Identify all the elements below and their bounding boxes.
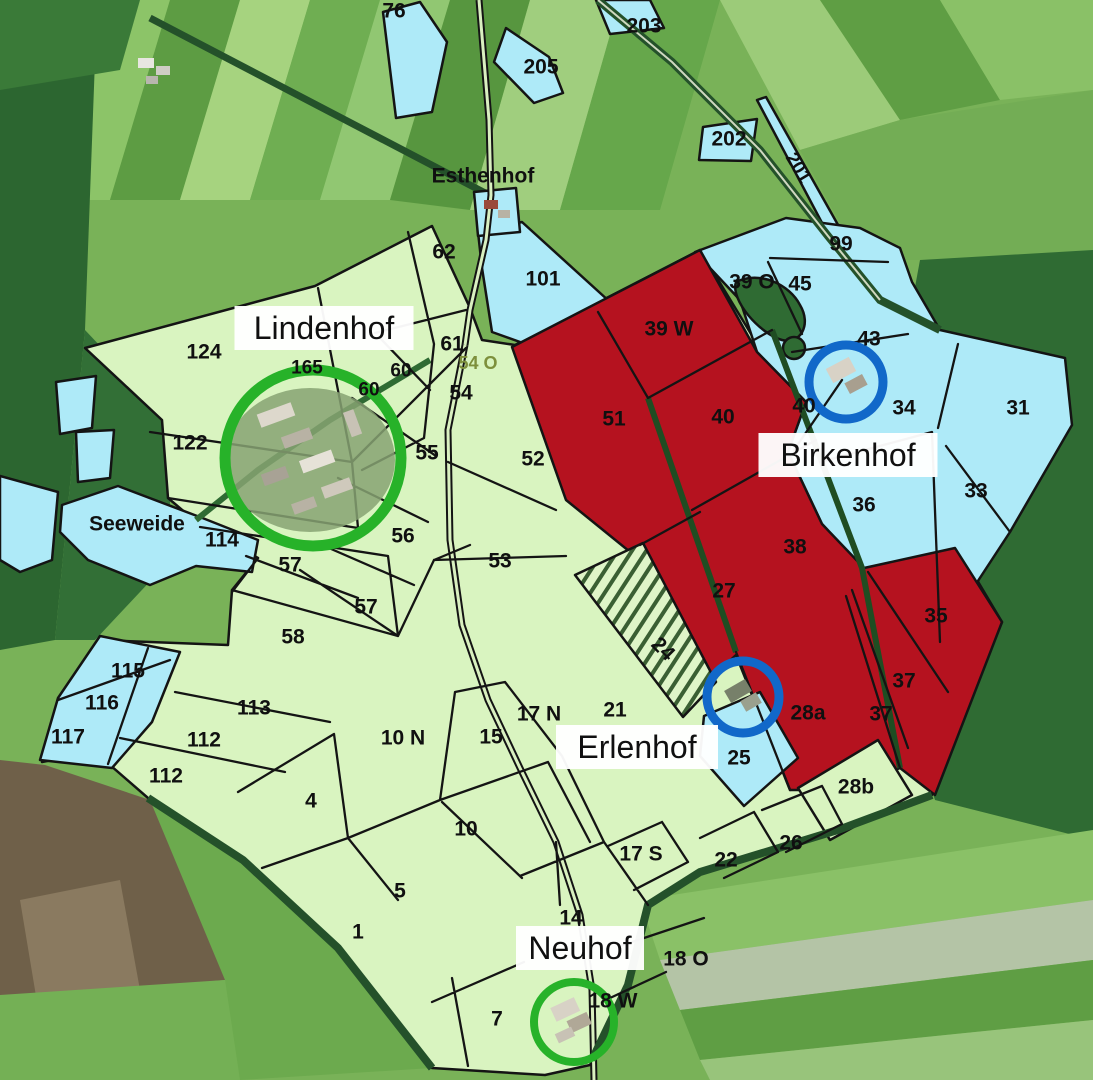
pond-small: [783, 337, 805, 359]
parcel-label-17-n: 17 N: [517, 703, 561, 726]
parcel-label-33: 33: [964, 480, 987, 503]
parcel-label-116: 116: [85, 692, 119, 715]
parcel-label-22: 22: [714, 849, 737, 872]
parcel-label-5: 5: [394, 880, 406, 903]
parcel-label-114: 114: [205, 529, 239, 552]
parcel-label-55: 55: [415, 442, 439, 465]
parcel-label-62: 62: [432, 241, 455, 264]
parcel-label-35: 35: [924, 605, 948, 628]
parcel-label-28a: 28a: [790, 702, 825, 725]
parcel-label-31: 31: [1006, 397, 1030, 420]
parcel-label-26: 26: [779, 832, 802, 855]
parcel-label-27: 27: [712, 580, 735, 603]
parcel-label-37: 37: [869, 703, 892, 726]
parcel-label-18-o: 18 O: [663, 948, 709, 971]
parcel-label-7: 7: [491, 1008, 503, 1031]
aerial-parcel-map: 762032052022019939 O45101624334313336401…: [0, 0, 1093, 1080]
parcel-label-112: 112: [149, 765, 183, 788]
parcel-label-54-o: 54 O: [458, 353, 497, 373]
parcel-label-37: 37: [892, 670, 915, 693]
parcel-label-57: 57: [354, 596, 377, 619]
parcel-label-39-o: 39 O: [729, 271, 775, 294]
parcel-label-28b: 28b: [838, 776, 874, 799]
parcel-label-38: 38: [783, 536, 807, 559]
parcel-label-58: 58: [281, 626, 305, 649]
parcel-label-165: 165: [291, 358, 323, 379]
parcel-label-40: 40: [711, 406, 734, 429]
parcel-label-51: 51: [602, 408, 626, 431]
parcel-label-36: 36: [852, 494, 875, 517]
parcel-label-1: 1: [352, 921, 364, 944]
parcel-label-10-n: 10 N: [381, 727, 425, 750]
parcel-label-56: 56: [391, 525, 414, 548]
parcel-label-115: 115: [111, 660, 145, 683]
parcel-label-122: 122: [172, 432, 207, 455]
parcel-label-18-w: 18 W: [588, 990, 637, 1013]
place-label-seeweide: Seeweide: [89, 513, 185, 536]
parcel-label-113: 113: [237, 697, 271, 720]
parcel-label-112: 112: [187, 729, 221, 752]
parcel-label-43: 43: [857, 328, 880, 351]
map-canvas: 762032052022019939 O45101624334313336401…: [0, 0, 1093, 1080]
farm-label-lindenhof: Lindenhof: [254, 310, 395, 346]
parcel-label-53: 53: [488, 550, 511, 573]
parcel-label-10: 10: [454, 818, 477, 841]
farm-label-erlenhof: Erlenhof: [577, 729, 696, 765]
place-label-esthenhof: Esthenhof: [432, 165, 536, 188]
farm-label-neuhof: Neuhof: [528, 930, 631, 966]
parcel-label-34: 34: [892, 397, 916, 420]
parcel-label-39-w: 39 W: [644, 318, 693, 341]
parcel-label-60: 60: [358, 380, 379, 401]
farm-label-birkenhof: Birkenhof: [780, 437, 915, 473]
parcel-label-15: 15: [479, 726, 503, 749]
parcel-label-202: 202: [711, 128, 746, 151]
parcel-label-101: 101: [525, 268, 560, 291]
parcel-label-76: 76: [382, 0, 405, 23]
parcel-label-57: 57: [278, 554, 301, 577]
parcel-label-60: 60: [390, 361, 411, 382]
parcel-label-40: 40: [792, 395, 815, 418]
parcel-label-21: 21: [603, 699, 627, 722]
parcel-label-54: 54: [449, 382, 473, 405]
parcel-label-99: 99: [829, 233, 852, 256]
parcel-label-52: 52: [521, 448, 544, 471]
parcel-label-4: 4: [305, 790, 317, 813]
parcel-label-203: 203: [626, 15, 661, 38]
parcel-label-17-s: 17 S: [619, 843, 662, 866]
parcel-label-124: 124: [186, 341, 221, 364]
parcel-label-117: 117: [51, 726, 85, 749]
parcel-label-45: 45: [788, 273, 812, 296]
parcel-label-25: 25: [727, 747, 751, 770]
parcel-label-205: 205: [523, 56, 558, 79]
